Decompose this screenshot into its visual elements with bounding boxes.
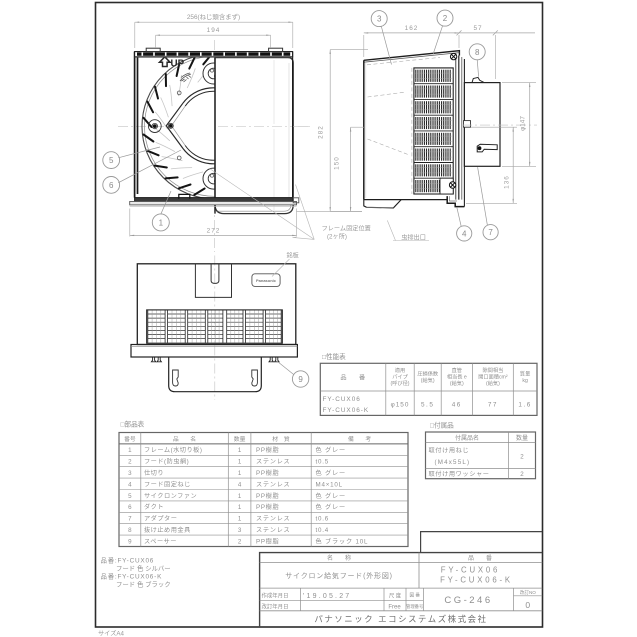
- svg-text:PP樹脂: PP樹脂: [256, 469, 279, 477]
- svg-text:194: 194: [207, 27, 221, 34]
- svg-text:282: 282: [318, 125, 325, 139]
- svg-text:1.6: 1.6: [518, 402, 531, 409]
- svg-text:136: 136: [504, 175, 511, 189]
- svg-text:t0.4: t0.4: [316, 527, 330, 534]
- svg-text:サイズA4: サイズA4: [98, 630, 125, 637]
- svg-text:2: 2: [520, 454, 524, 461]
- svg-text:品 番: 品 番: [340, 375, 365, 382]
- svg-text:162: 162: [405, 25, 419, 32]
- svg-text:φ150: φ150: [391, 402, 410, 409]
- svg-text:(呼び径): (呼び径): [390, 379, 409, 387]
- svg-text:改訂年月日: 改訂年月日: [262, 602, 289, 610]
- svg-text:9: 9: [128, 538, 132, 545]
- svg-text:付属品名: 付属品名: [455, 434, 479, 442]
- svg-text:仕切り: 仕切り: [144, 469, 164, 477]
- svg-text:フレーム(水切り板): フレーム(水切り板): [144, 446, 202, 454]
- svg-text:相当長 e: 相当長 e: [447, 373, 467, 381]
- svg-text:(給気): (給気): [486, 379, 500, 387]
- svg-text:Panasonic: Panasonic: [256, 278, 277, 283]
- svg-text:'19.05.27: '19.05.27: [303, 593, 351, 600]
- svg-text:フード(防虫網): フード(防虫網): [144, 458, 189, 466]
- svg-text:7: 7: [488, 228, 493, 237]
- svg-text:2: 2: [443, 14, 448, 23]
- svg-text:ダクト: ダクト: [144, 503, 164, 511]
- svg-text:7: 7: [128, 516, 132, 523]
- svg-text:取付け用ワッシャー: 取付け用ワッシャー: [429, 470, 490, 478]
- svg-text:フレーム固定位置: フレーム固定位置: [322, 225, 371, 233]
- svg-text:品 名: 品 名: [173, 435, 196, 443]
- svg-text:図 番: 図 番: [409, 592, 420, 599]
- svg-text:(M4x55L): (M4x55L): [435, 459, 471, 466]
- svg-text:8: 8: [475, 48, 480, 57]
- svg-text:FY-CUX06: FY-CUX06: [441, 566, 500, 575]
- svg-text:UP: UP: [171, 59, 185, 70]
- svg-text:5: 5: [109, 156, 114, 165]
- svg-text:1: 1: [159, 218, 164, 227]
- svg-text:1: 1: [238, 516, 242, 523]
- svg-text:(給気): (給気): [450, 379, 464, 387]
- svg-text:FY-CUX06-K: FY-CUX06-K: [440, 576, 513, 585]
- svg-text:ステンレス: ステンレス: [256, 516, 290, 523]
- svg-text:CG-246: CG-246: [444, 595, 492, 606]
- svg-text:パイプ: パイプ: [392, 374, 408, 381]
- svg-text:□付属品: □付属品: [430, 421, 454, 430]
- svg-text:4: 4: [238, 481, 242, 488]
- svg-text:272: 272: [207, 227, 221, 234]
- svg-text:取付け用ねじ: 取付け用ねじ: [429, 447, 470, 455]
- svg-text:パナソニック エコシステムズ株式会社: パナソニック エコシステムズ株式会社: [314, 614, 487, 624]
- svg-text:1: 1: [238, 447, 242, 454]
- svg-text:色 グレー: 色 グレー: [316, 492, 346, 500]
- svg-text:開口面積cm²: 開口面積cm²: [478, 373, 508, 381]
- svg-text:色 グレー: 色 グレー: [316, 469, 346, 477]
- svg-text:0: 0: [525, 600, 530, 610]
- svg-text:隙間相当: 隙間相当: [483, 366, 504, 374]
- svg-text:256(ねじ頭含まず): 256(ねじ頭含まず): [187, 12, 240, 21]
- svg-text:1: 1: [128, 447, 132, 454]
- svg-text:材 質: 材 質: [272, 435, 290, 443]
- svg-text:3: 3: [238, 527, 242, 534]
- svg-text:t0.6: t0.6: [316, 516, 330, 523]
- svg-text:57: 57: [473, 25, 482, 32]
- svg-text:番号: 番号: [124, 436, 136, 443]
- svg-text:改訂NO: 改訂NO: [520, 589, 537, 596]
- svg-text:ステンレス: ステンレス: [256, 481, 290, 488]
- svg-text:フード 色 シルバー: フード 色 シルバー: [116, 564, 171, 573]
- svg-text:管理番号: 管理番号: [406, 603, 423, 610]
- svg-text:2: 2: [238, 538, 242, 545]
- svg-text:色 ブラック 10L: 色 ブラック 10L: [316, 537, 369, 545]
- svg-text:ステンレス: ステンレス: [256, 527, 290, 534]
- svg-text:□性能表: □性能表: [322, 352, 346, 361]
- svg-text:1: 1: [238, 493, 242, 500]
- svg-text:kg: kg: [522, 378, 528, 384]
- svg-text:サイクロン給気フード(外形図): サイクロン給気フード(外形図): [285, 571, 393, 580]
- svg-text:尺 度: 尺 度: [389, 592, 402, 600]
- svg-text:虫排出口: 虫排出口: [401, 233, 426, 241]
- svg-text:適用: 適用: [395, 366, 405, 374]
- svg-text:色 グレー: 色 グレー: [316, 503, 346, 511]
- svg-text:150: 150: [334, 156, 341, 170]
- svg-text:数量: 数量: [516, 434, 528, 442]
- svg-text:6: 6: [128, 504, 132, 511]
- svg-text:6: 6: [109, 181, 114, 190]
- svg-text:9: 9: [298, 375, 303, 384]
- svg-text:3: 3: [377, 15, 382, 24]
- svg-text:M4×10L: M4×10L: [316, 481, 343, 488]
- svg-text:銘板: 銘板: [287, 252, 299, 260]
- svg-text:PP樹脂: PP樹脂: [256, 537, 279, 545]
- svg-text:(給気): (給気): [421, 376, 435, 384]
- svg-text:1: 1: [238, 504, 242, 511]
- svg-text:φ147: φ147: [520, 116, 527, 131]
- svg-text:圧損係数: 圧損係数: [417, 370, 439, 378]
- svg-text:スペーサー: スペーサー: [144, 538, 177, 545]
- svg-text:1: 1: [238, 459, 242, 466]
- svg-text:作成年月日: 作成年月日: [262, 592, 289, 600]
- svg-text:PP樹脂: PP樹脂: [256, 446, 279, 454]
- svg-text:Free: Free: [388, 605, 401, 611]
- svg-text:備 考: 備 考: [348, 435, 371, 443]
- svg-text:77: 77: [488, 402, 498, 409]
- svg-text:FY-CUX06: FY-CUX06: [323, 396, 361, 403]
- svg-text:□部品表: □部品表: [121, 420, 145, 429]
- svg-text:3: 3: [128, 470, 132, 477]
- svg-text:フード固定ねじ: フード固定ねじ: [144, 480, 191, 488]
- svg-text:5.5: 5.5: [421, 402, 434, 409]
- svg-text:ステンレス: ステンレス: [256, 459, 290, 466]
- svg-text:2: 2: [520, 471, 524, 478]
- svg-text:PP樹脂: PP樹脂: [256, 503, 279, 511]
- svg-text:PP樹脂: PP樹脂: [256, 492, 279, 500]
- svg-text:8: 8: [128, 527, 132, 534]
- svg-text:4: 4: [128, 481, 132, 488]
- svg-text:(2ヶ所): (2ヶ所): [327, 233, 347, 241]
- svg-text:5: 5: [128, 493, 132, 500]
- svg-text:2: 2: [128, 459, 132, 466]
- svg-text:4: 4: [462, 229, 467, 238]
- svg-text:1: 1: [238, 470, 242, 477]
- svg-text:品番:FY-CUX06-K: 品番:FY-CUX06-K: [101, 573, 163, 581]
- svg-text:FY-CUX06-K: FY-CUX06-K: [323, 407, 370, 414]
- svg-text:直管: 直管: [452, 366, 462, 374]
- svg-text:46: 46: [452, 402, 462, 409]
- svg-text:t0.5: t0.5: [316, 459, 330, 466]
- svg-text:抜け止め用金具: 抜け止め用金具: [144, 526, 191, 534]
- svg-text:品 番: 品 番: [468, 555, 492, 562]
- svg-text:品番:FY-CUX06: 品番:FY-CUX06: [101, 557, 155, 565]
- svg-text:数量: 数量: [234, 435, 246, 443]
- svg-text:名 称: 名 称: [327, 554, 351, 562]
- svg-text:質量: 質量: [520, 370, 530, 378]
- svg-text:サイクロンファン: サイクロンファン: [144, 493, 197, 500]
- svg-text:色 グレー: 色 グレー: [316, 446, 346, 454]
- svg-text:フード 色 ブラック: フード 色 ブラック: [116, 580, 171, 589]
- svg-text:アダプター: アダプター: [144, 515, 177, 523]
